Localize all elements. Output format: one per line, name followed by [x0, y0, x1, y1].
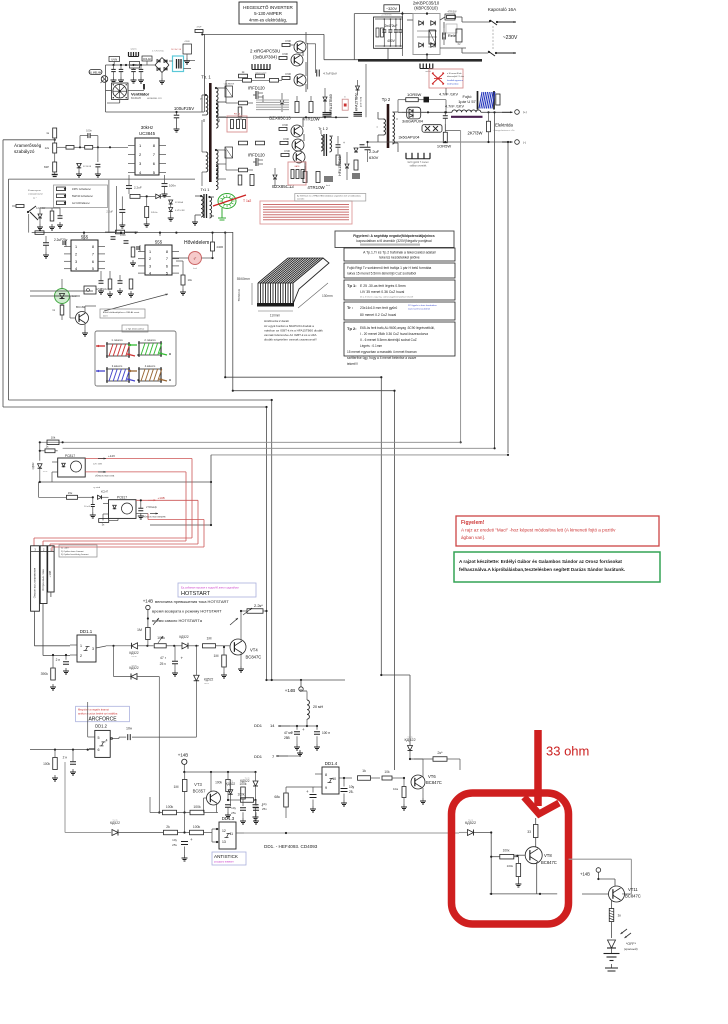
svg-text:Ед сабаная пауская и подробб.а: Ед сабаная пауская и подробб.аннот одура… [181, 586, 239, 590]
svg-text:15 menet egysorban a maradék 4: 15 menet egysorban a maradék 4 menet fin… [347, 350, 417, 354]
svg-text:1) +14V: 1) +14V [61, 548, 69, 550]
svg-text:КС147: КС147 [101, 491, 109, 494]
svg-text:25-: 25- [349, 790, 354, 794]
svg-text:0.5R: 0.5R [285, 39, 291, 43]
svg-text:GATE: GATE [294, 165, 300, 168]
svg-text:Figyelem!: A segédtáp negatív(: Figyelem!: A segédtáp negatív(földpotenc… [353, 234, 435, 238]
svg-text:1М: 1М [174, 785, 179, 789]
svg-text:Kapcsoló 16A: Kapcsoló 16A [488, 7, 517, 12]
svg-text:100uF25V: 100uF25V [174, 106, 194, 111]
svg-text:13: 13 [222, 840, 226, 844]
svg-text:www tuvel keszuleknel: www tuvel keszuleknel [408, 308, 431, 311]
svg-text:Оптрон вых. тока: Оптрон вых. тока [41, 569, 45, 591]
svg-text:2k: 2k [166, 825, 170, 829]
svg-text:4.7nF /1KV: 4.7nF /1KV [445, 105, 464, 109]
svg-text:33 ohm: 33 ohm [546, 744, 589, 759]
svg-text:400V: 400V [387, 39, 396, 43]
svg-text:0.5R: 0.5R [282, 52, 288, 56]
svg-text:(-): (-) [523, 141, 526, 145]
svg-text:1к2 100Ом/вольт: 1к2 100Ом/вольт [72, 203, 91, 205]
svg-text:КС147А: КС147А [83, 165, 91, 168]
svg-text:5: 5 [98, 736, 100, 740]
svg-text:100к: 100к [503, 849, 510, 853]
svg-text:КД522: КД522 [179, 635, 189, 639]
svg-text:DD1: DD1 [254, 723, 263, 728]
svg-text:2K7/3W: 2K7/3W [468, 131, 483, 136]
svg-text:7: 7 [166, 257, 168, 261]
svg-text:100k: 100k [43, 762, 50, 766]
svg-text:HOTSTART: HOTSTART [181, 591, 211, 597]
svg-text:szerelni: szerelni [297, 198, 305, 201]
svg-text:HFA15TB60: HFA15TB60 [329, 94, 333, 114]
svg-text:BC857: BC857 [193, 789, 206, 794]
svg-text:80 menet 0.2 CuZ huzal: 80 menet 0.2 CuZ huzal [360, 313, 396, 317]
svg-text:0.5R: 0.5R [283, 137, 289, 141]
svg-text:23x14x10 mm ferit gyűrű: 23x14x10 mm ferit gyűrű [360, 306, 397, 310]
svg-text:Hővédelem: Hővédelem [184, 240, 209, 246]
svg-text:PC817: PC817 [117, 496, 127, 500]
svg-text:2: 2 [80, 654, 82, 658]
svg-text:I-IV 35 menet 0.36 CuZ huzal: I-IV 35 menet 0.36 CuZ huzal [360, 290, 405, 294]
svg-text:240R: 240R [217, 245, 224, 249]
svg-text:2700мкф: 2700мкф [146, 505, 158, 509]
svg-text:+: + [343, 141, 345, 145]
svg-text:11: 11 [229, 832, 233, 836]
svg-text:1pár U 57: 1pár U 57 [458, 99, 476, 104]
svg-text:3x6GAPU04: 3x6GAPU04 [402, 120, 423, 124]
svg-text:3: 3 [149, 264, 151, 268]
svg-text:VT8: VT8 [544, 853, 552, 858]
svg-text:Áramerősség: Áramerősség [14, 142, 42, 148]
svg-text:R изм.шунта: R изм.шунта [28, 190, 42, 192]
svg-text:+14В: +14В [143, 599, 153, 604]
svg-text:пент: пент [103, 316, 108, 318]
svg-text:Tp. 1: Tp. 1 [201, 75, 211, 80]
svg-text:10у: 10у [349, 785, 355, 789]
svg-text:A 4tő hűtőbordájához a 20R-AL: A 4tő hűtőbordájához a 20R-AL vezet [103, 311, 140, 314]
svg-text:szures: szures [130, 48, 136, 51]
svg-text:PC817: PC817 [65, 454, 75, 458]
svg-text:Tp 1:: Tp 1: [347, 283, 357, 288]
svg-text:2. tekercs: 2. tekercs [144, 338, 156, 342]
svg-text:(+): (+) [523, 110, 527, 114]
svg-text:82Р: 82Р [44, 165, 49, 169]
svg-text:5: 5 [92, 267, 94, 271]
svg-text:кь *: кь * [33, 198, 37, 200]
svg-text:UC3845: UC3845 [139, 131, 156, 136]
svg-text:HFA15TB60: HFA15TB60 [355, 93, 359, 112]
svg-text:3: 3 [92, 647, 94, 651]
svg-text:Ventilátor: Ventilátor [131, 92, 150, 97]
svg-text:Fojtó:Régi Tv sorkimenő ferit: Fojtó:Régi Tv sorkimenő ferit trafója 1 … [347, 266, 431, 270]
svg-text:14: 14 [270, 723, 275, 728]
svg-text:A rajzot készítette: Erdélyi G: A rajzot készítette: Erdélyi Gábor és Ga… [459, 559, 622, 564]
svg-text:A Tp.1,Tr és Tp.2 trafóinak a: A Tp.1,Tr és Tp.2 trafóinak a tekercselé… [363, 251, 436, 255]
svg-text:huzalból egyszerre: huzalból egyszerre [447, 79, 463, 82]
svg-text:4: 4 [149, 272, 151, 276]
svg-text:100k: 100k [193, 825, 201, 829]
svg-text:устрдало извжает: устрдало извжает [214, 861, 235, 864]
svg-text:47 г: 47 г [160, 656, 167, 660]
svg-text:BC847C: BC847C [541, 860, 557, 865]
svg-text:~320V: ~320V [386, 7, 398, 11]
svg-text:6: 6 [98, 748, 100, 752]
svg-text:25v: 25v [172, 843, 177, 847]
svg-text:0.5R: 0.5R [282, 123, 288, 127]
svg-text:2: 2 [75, 252, 77, 256]
svg-text:1k: 1k [362, 769, 366, 773]
svg-text:+14В: +14В [285, 688, 295, 693]
svg-text:4.7uF250Vdc: 4.7uF250Vdc [152, 51, 164, 53]
svg-text:4: 4 [75, 267, 77, 271]
svg-text:1М: 1М [207, 637, 212, 641]
svg-text:VT6: VT6 [428, 774, 436, 779]
svg-text:[10ETS08]: [10ETS08] [361, 96, 363, 107]
svg-text:24V AC 2A: 24V AC 2A [171, 48, 182, 51]
svg-text:100k: 100k [240, 782, 247, 786]
svg-text:VT3: VT3 [194, 782, 202, 787]
svg-text:felhasználva.A kipróbálásban,t: felhasználva.A kipróbálásban,tesztelésbe… [459, 567, 625, 572]
svg-text:100k: 100k [157, 636, 165, 640]
svg-text:szabályzó: szabályzó [14, 149, 35, 154]
svg-text:vannak felszerelve.Az IGBT-k é: vannak felszerelve.Az IGBT-k és a HFA [264, 333, 317, 337]
svg-text:amikor a csúcs betéré az imádk: amikor a csúcs betéré az imádkba [78, 711, 118, 715]
svg-text:12V/2SMenges: 12V/2SMenges [96, 288, 113, 291]
svg-text:33: 33 [527, 830, 531, 834]
svg-text:t°: t° [194, 256, 197, 261]
svg-text:tekercseljük 2 1 átm: tekercseljük 2 1 átm [447, 75, 464, 78]
svg-text:25В: 25В [284, 736, 290, 740]
svg-text:DD1.4: DD1.4 [325, 761, 338, 766]
svg-text:словами вольт: словами вольт [28, 194, 43, 196]
svg-text:E 25 -30-as ferit légrés 0.5m: E 25 -30-as ferit légrés 0.5mm [360, 284, 406, 288]
svg-text:Tr 1 2: Tr 1 2 [318, 127, 328, 131]
svg-text:+14б: +14б [108, 454, 115, 458]
svg-text:Az egyik bordán a 60APU04 diod: Az egyik bordán a 60APU04 diodák a [264, 324, 314, 328]
svg-text:rakva 15 menet 5.5mm átmérő: rakva 15 menet 5.5mm átmérőjű CuZ sodrat… [347, 272, 416, 276]
svg-text:8: 8 [325, 773, 327, 777]
svg-text:1М: 1М [214, 654, 219, 658]
svg-text:47uF: 47uF [197, 27, 203, 29]
svg-text:100к: 100к [507, 864, 514, 868]
svg-text:110mm: 110mm [270, 314, 281, 318]
svg-text:+: + [306, 789, 309, 794]
svg-text:a Tp1 tekercselése: a Tp1 tekercselése [126, 328, 145, 331]
svg-text:5: 5 [166, 272, 168, 276]
svg-text:та-на: та-на [43, 471, 47, 473]
svg-text:E65-ös ferit trafó,AL:9600,any: E65-ös ferit trafó,AL:9600,anyag :3C90 l… [360, 326, 435, 330]
svg-text:КД522: КД522 [465, 821, 476, 825]
svg-text:tekert!!!: tekert!!! [347, 362, 358, 366]
svg-text:IRFD120: IRFD120 [248, 153, 265, 158]
svg-text:+: + [190, 837, 193, 842]
svg-text:КД522: КД522 [129, 651, 139, 655]
svg-text:0.5R: 0.5R [285, 72, 291, 76]
svg-text:Megnövé a negatív áramot: Megnövé a negatív áramot [78, 708, 109, 712]
svg-text:2к*: 2к* [437, 751, 443, 755]
svg-text:12: 12 [222, 829, 226, 833]
svg-text:IRFD120: IRFD120 [248, 86, 265, 91]
svg-text:BC847C: BC847C [246, 655, 262, 660]
svg-text:BC847C: BC847C [426, 780, 442, 785]
svg-text:1: 1 [80, 644, 82, 648]
svg-text:3) Optika feszültség Jumawi: 3) Optika feszültség Jumawi [61, 553, 89, 556]
svg-text:+14В: +14В [158, 496, 165, 500]
svg-text:555: 555 [155, 240, 163, 245]
svg-text:55/60mm: 55/60mm [237, 277, 251, 281]
svg-text:ANTISTICK: ANTISTICK [214, 854, 239, 859]
svg-text:область вых.тока: область вых.тока [95, 475, 115, 478]
svg-text:8: 8 [92, 245, 94, 249]
svg-text:DD1. - HEF4093. CD4093: DD1. - HEF4093. CD4093 [264, 844, 318, 849]
svg-text:(красный): (красный) [624, 947, 638, 951]
svg-text:2.2к*: 2.2к* [254, 603, 263, 608]
svg-text:2: 2 [149, 257, 151, 261]
svg-text:10у: 10у [172, 838, 177, 842]
svg-text:25v: 25v [231, 811, 236, 815]
svg-text:6: 6 [92, 260, 94, 264]
svg-text:Légrés : 0.1mm: Légrés : 0.1mm [360, 344, 382, 348]
svg-text:3: 3 [75, 260, 77, 264]
svg-text:ARCFORCE: ARCFORCE [88, 717, 117, 723]
svg-text:10k: 10k [384, 770, 390, 774]
svg-text:10 нФ: 10 нФ [84, 505, 90, 508]
svg-text:величина превышения тока HOTST: величина превышения тока HOTSTART [155, 599, 229, 604]
svg-text:КД522: КД522 [226, 782, 236, 786]
svg-text:Cs-CHARGE: Cs-CHARGE [224, 83, 235, 86]
svg-text:Tp 2: Tp 2 [382, 97, 391, 102]
svg-text:HONEWEL 12V: HONEWEL 12V [147, 98, 162, 100]
svg-text:+14В: +14В [580, 872, 590, 877]
svg-text:100n: 100n [86, 129, 92, 133]
svg-text:60x60x25: 60x60x25 [131, 98, 142, 100]
svg-text:Оптрон вых.напряжения: Оптрон вых.напряжения [32, 567, 36, 598]
svg-text:100 н: 100 н [322, 731, 330, 735]
svg-text:4.tekercs: 4.tekercs [145, 364, 156, 368]
svg-text:+: + [302, 727, 305, 732]
svg-text:PC figyelni a fazis kezdetekre: PC figyelni a fazis kezdetekre [408, 304, 437, 307]
svg-text:BL.MELNIK: BL.MELNIK [89, 71, 102, 74]
svg-text:másikon az IGBT-k és a HFA15TB: másikon az IGBT-k és a HFA15TB60 diodák [264, 329, 323, 333]
svg-text:szétterítve úgy, hogy a 4 me: szétterítve úgy, hogy a 4 menet betentse… [347, 356, 416, 360]
svg-text:1М: 1М [137, 628, 142, 632]
svg-text:130mm: 130mm [322, 294, 333, 298]
svg-text:ferrit: ferrit [326, 184, 330, 187]
svg-text:10у: 10у [231, 806, 236, 810]
svg-text:КД522: КД522 [110, 821, 120, 825]
svg-text:I - 20 menet 28db 0.36 C: I - 20 menet 28db 0.36 CuZ huzal összeso… [360, 332, 428, 336]
svg-text:9: 9 [325, 786, 327, 790]
svg-text:~230V: ~230V [503, 35, 518, 41]
svg-text:DD1: DD1 [254, 754, 263, 759]
svg-text:КС456А: КС456А [175, 201, 183, 204]
svg-text:20 мН: 20 мН [313, 705, 323, 709]
svg-text:diodák szigetelten vannak csav: diodák szigetelten vannak csavarozva!!! [264, 338, 317, 342]
svg-text:+14В: +14В [48, 571, 52, 578]
svg-text:+у stab: +у stab [93, 486, 101, 489]
svg-text:*OFF*: *OFF* [626, 942, 637, 946]
svg-text:100k: 100k [166, 805, 174, 809]
svg-text:T 1к2: T 1к2 [243, 199, 251, 203]
svg-text:2.2uF: 2.2uF [134, 186, 142, 190]
svg-text:4.7nF /1KV: 4.7nF /1KV [439, 93, 458, 97]
svg-text:(KBPC5010): (KBPC5010) [414, 6, 438, 11]
svg-text:kezd fazisban: kezd fazisban [447, 84, 459, 86]
svg-text:1к: 1к [618, 914, 622, 918]
svg-text:0.5R: 0.5R [284, 149, 290, 153]
svg-text:2.2uF: 2.2uF [369, 149, 380, 154]
svg-text:3x6GAPU04: 3x6GAPU04 [398, 136, 419, 140]
svg-text:Az IGBT-ket és a HFA15TB60 dió: Az IGBT-ket és a HFA15TB60 diódákat szig… [297, 195, 362, 198]
svg-text:DD1.2: DD1.2 [95, 724, 108, 729]
svg-text:BC847C: BC847C [625, 894, 641, 899]
svg-text:1: 1 [75, 245, 77, 249]
svg-text:время возврата к режиму HOTSTA: время возврата к режиму HOTSTART [152, 609, 222, 614]
svg-text:ágban van].: ágban van]. [461, 535, 485, 540]
svg-text:область вых.напряж: область вых.напряж [143, 516, 166, 519]
svg-text:12V 15W: 12V 15W [93, 464, 103, 466]
svg-text:szűrő: szűrő [425, 70, 431, 73]
svg-text:Relé: Relé [448, 33, 457, 38]
svg-text:47R/5W: 47R/5W [447, 11, 457, 14]
svg-text:+14В: +14В [178, 753, 188, 758]
svg-text:+LOW ESR: +LOW ESR [381, 15, 392, 17]
svg-text:6: 6 [166, 264, 168, 268]
svg-text:UVN: UVN [111, 57, 117, 61]
svg-text:2 н: 2 н [56, 658, 61, 662]
svg-text:56кР/20 1кОм/вольт: 56кР/20 1кОм/вольт [72, 196, 94, 198]
svg-text:kapcsolatban a fő áramkör (320: kapcsolatban a fő áramkör (320V)Negatív … [356, 239, 431, 243]
svg-text:Elektróda: Elektróda [495, 123, 513, 128]
svg-text:HEGESZTŐ INVERTER: HEGESZTŐ INVERTER [243, 4, 293, 10]
svg-text:555: 555 [81, 235, 89, 240]
svg-text:100n: 100n [169, 184, 176, 188]
svg-text:К387х 1кОм/вольт: К387х 1кОм/вольт [72, 189, 92, 191]
svg-text:6.V15.3W: 6.V15.3W [175, 210, 186, 212]
svg-text:5-130 AMPER: 5-130 AMPER [254, 11, 282, 16]
svg-text:2 xIRG4PC50U: 2 xIRG4PC50U [250, 49, 280, 54]
svg-text:a 10 menet 8 fele: a 10 menet 8 fele [447, 72, 462, 75]
svg-text:2.2uF20v: 2.2uF20v [54, 238, 68, 242]
svg-text:30kHz: 30kHz [141, 125, 153, 130]
svg-text:DD1.3: DD1.3 [222, 816, 235, 821]
svg-text:1. tekercs: 1. tekercs [111, 338, 123, 342]
svg-text:1OR5W: 1OR5W [407, 92, 421, 97]
svg-text:4.7uF/1kV: 4.7uF/1kV [323, 72, 337, 76]
svg-text:25 v: 25 v [160, 662, 167, 666]
svg-text:КД522: КД522 [204, 678, 214, 682]
svg-text:Tr :: Tr : [347, 305, 353, 310]
svg-text:Figyelem!: Figyelem! [461, 520, 485, 526]
svg-text:2.2uF: 2.2uF [106, 210, 113, 214]
svg-text:Hűtőborda:2 darab: Hűtőborda:2 darab [264, 319, 289, 323]
svg-text:A rajz az eredeti "Maci" -hoz: A rajz az eredeti "Maci" -hoz képest mód… [461, 528, 616, 533]
svg-text:1: 1 [149, 250, 151, 254]
svg-text:100k: 100k [193, 805, 201, 809]
svg-text:DD1.1: DD1.1 [80, 629, 93, 634]
svg-text:100k: 100k [215, 781, 222, 785]
svg-text:2 н: 2 н [63, 756, 68, 760]
svg-text:VT4: VT4 [250, 648, 258, 653]
svg-text:1OR5W: 1OR5W [437, 144, 451, 149]
svg-text:7: 7 [92, 252, 94, 256]
svg-text:10k: 10k [51, 436, 56, 440]
svg-text:55/60mm: 55/60mm [237, 288, 241, 301]
svg-text:RG 10: RG 10 [234, 114, 241, 116]
svg-text:10а: 10а [393, 787, 398, 791]
svg-text:КД522: КД522 [32, 462, 35, 470]
svg-text:8: 8 [166, 250, 168, 254]
svg-text:0.47uF: 0.47uF [429, 47, 436, 49]
svg-text:47 мФ: 47 мФ [284, 731, 294, 735]
svg-text:VT11: VT11 [628, 887, 638, 892]
svg-text:4: 4 [106, 739, 108, 743]
svg-text:II - 6 menet 5.5mm átmérőj: II - 6 menet 5.5mm átmérőjű sodrat CuZ [360, 338, 417, 342]
svg-text:3.tekercs: 3.tekercs [112, 364, 123, 368]
svg-text:345.6к: 345.6к [151, 212, 157, 214]
svg-text:68к: 68к [274, 795, 280, 799]
svg-text:10: 10 [332, 777, 336, 781]
svg-text:390k: 390k [41, 672, 49, 676]
svg-text:10н: 10н [126, 727, 132, 731]
svg-text:100k: 100k [238, 793, 245, 797]
svg-text:время самого HOTSTARTа: время самого HOTSTARTа [152, 618, 203, 623]
svg-text:kb a 4 tekercs egy rég, sodrat: kb a 4 tekercs egy rég, sodrat jegyekkel… [360, 296, 414, 299]
svg-text:2x472uF: 2x472uF [385, 24, 398, 28]
svg-text:+: + [181, 656, 184, 661]
svg-text:BC182: BC182 [76, 305, 86, 309]
svg-text:szilikon vezeték: szilikon vezeték [410, 165, 428, 168]
svg-text:4TR10W: 4TR10W [307, 185, 325, 190]
svg-text:tekercs kezdetekkel jelölve: tekercs kezdetekkel jelölve [379, 256, 419, 260]
svg-text:630V: 630V [369, 155, 379, 160]
svg-text:470R: 470R [184, 41, 190, 43]
svg-text:Tr1 1: Tr1 1 [201, 188, 210, 192]
svg-text:4mm-es elektródáig,: 4mm-es elektródáig, [249, 18, 287, 23]
svg-text:2) Optika áram Jumawi: 2) Optika áram Jumawi [61, 550, 84, 553]
svg-text:COLAC: COLAC [143, 58, 152, 61]
svg-text:BZX85C13: BZX85C13 [269, 116, 291, 121]
svg-text:Tp 2:: Tp 2: [347, 326, 357, 331]
svg-text:Omega betuse ni +5v: Omega betuse ni +5v [494, 129, 516, 132]
svg-text:(3xBUP304): (3xBUP304) [253, 55, 277, 60]
